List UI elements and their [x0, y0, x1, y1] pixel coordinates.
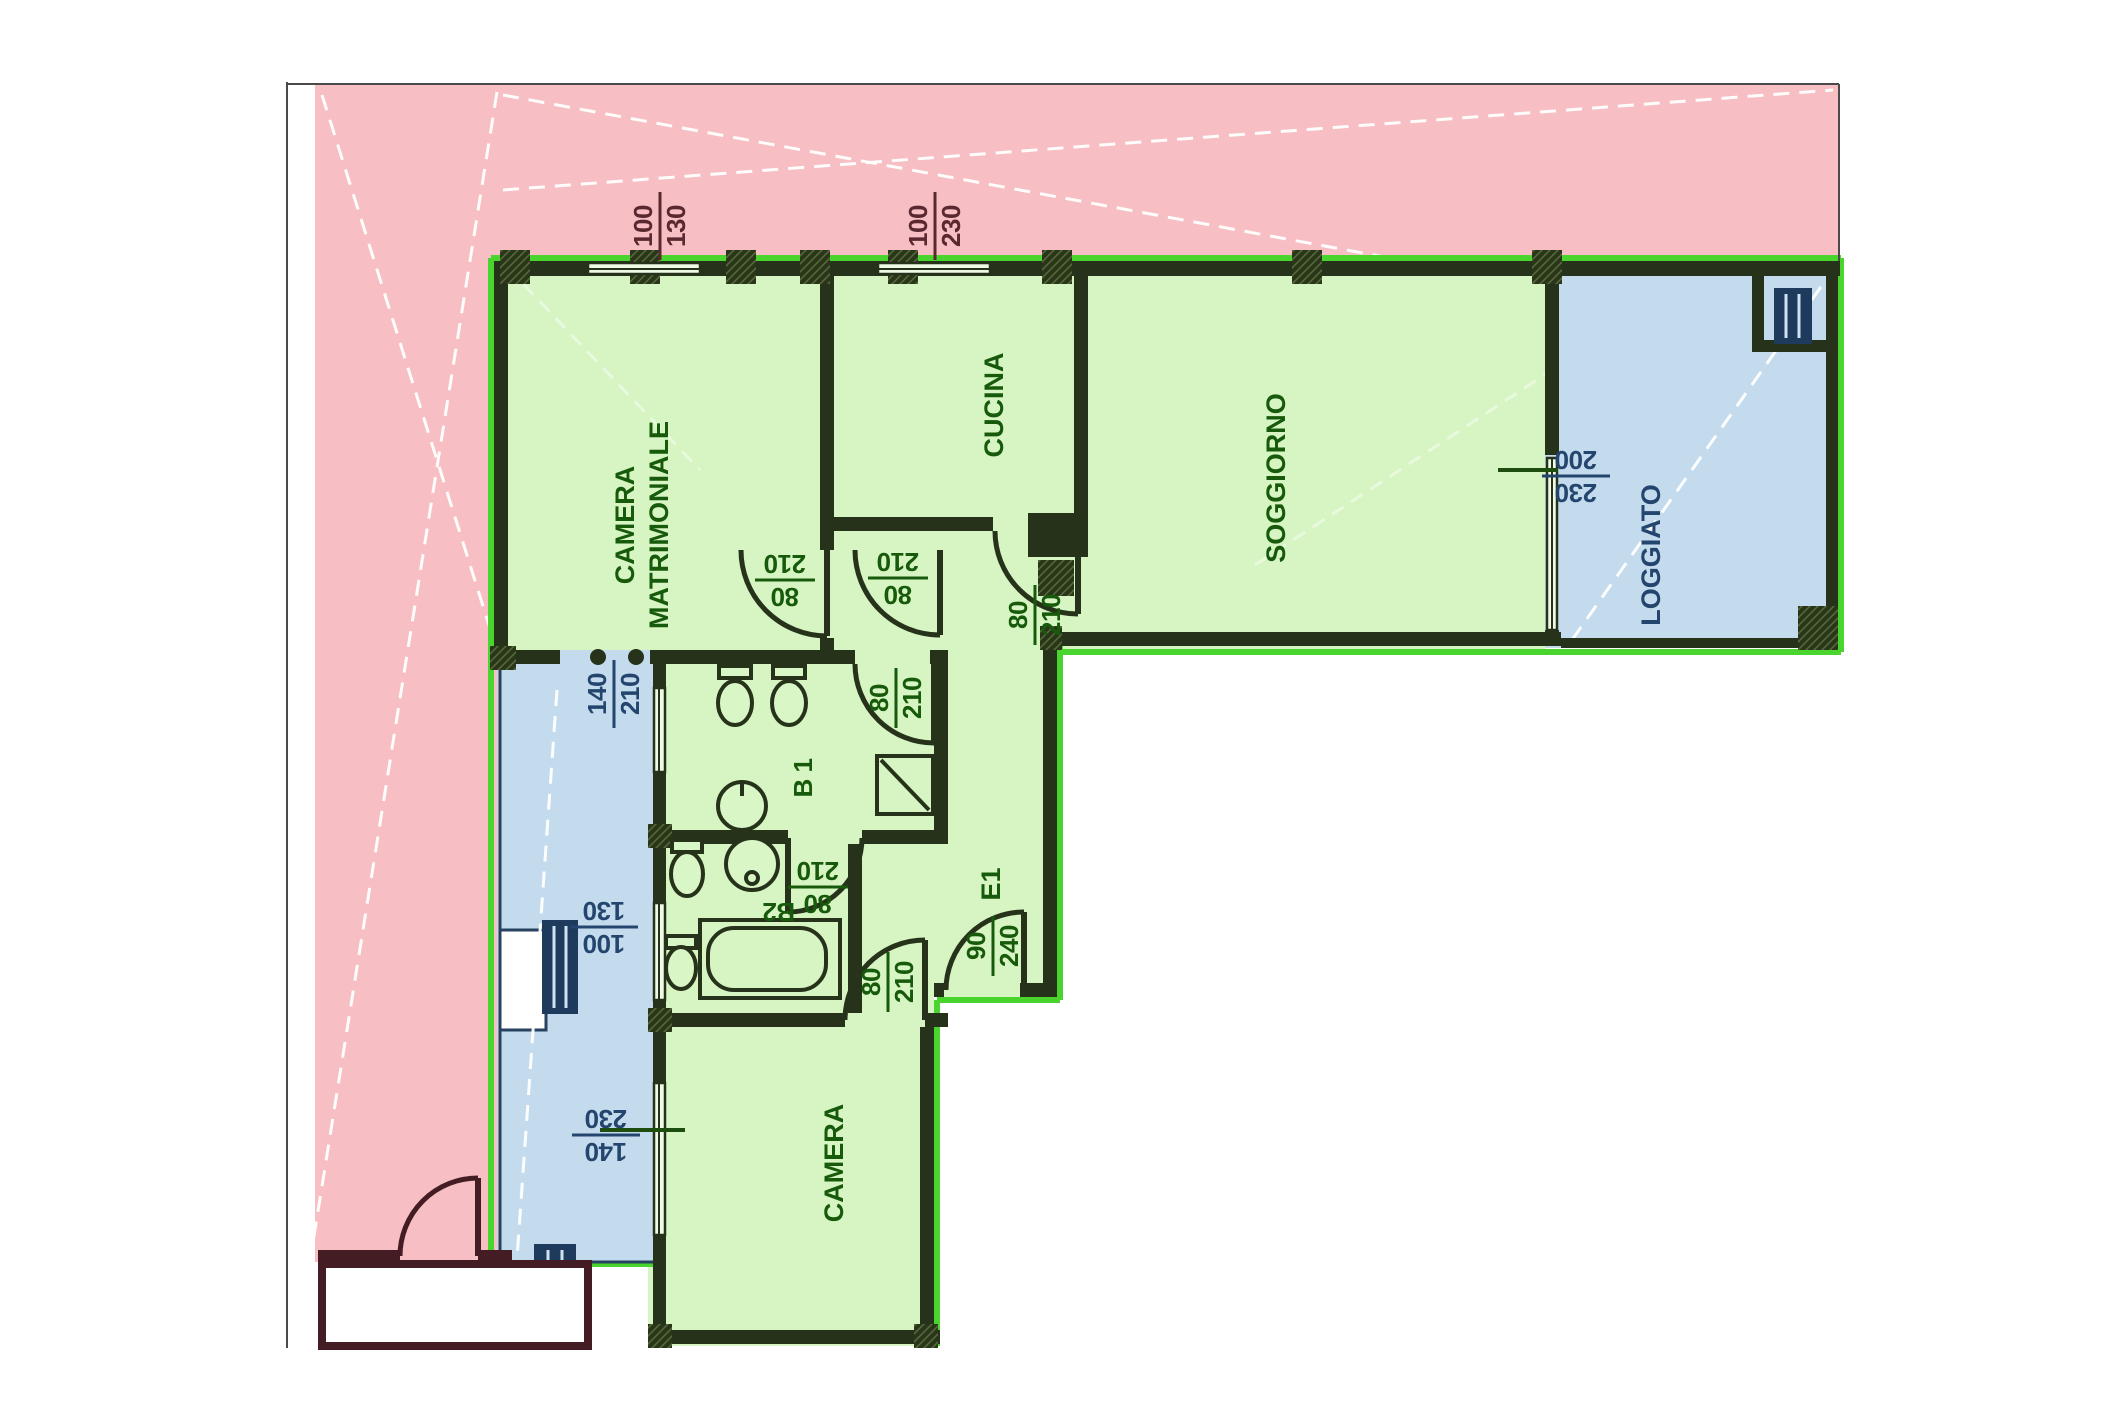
svg-text:130: 130	[583, 896, 625, 926]
svg-text:B 1: B 1	[788, 758, 818, 797]
svg-text:210: 210	[797, 856, 839, 886]
svg-text:E1: E1	[976, 867, 1006, 900]
svg-text:140: 140	[582, 673, 612, 715]
room-label-camera: CAMERA	[819, 1104, 849, 1223]
toilet-icon	[666, 936, 696, 989]
room-label-bagno2: B2	[763, 897, 795, 927]
svg-text:140: 140	[585, 1137, 627, 1167]
svg-text:200: 200	[1555, 445, 1597, 475]
radiator-icon	[1774, 288, 1812, 344]
svg-text:CAMERA: CAMERA	[610, 466, 640, 585]
svg-text:CUCINA: CUCINA	[979, 353, 1009, 458]
window-camera-matrimoniale-icon	[654, 688, 665, 772]
svg-text:100: 100	[903, 205, 933, 247]
svg-text:LOGGIATO: LOGGIATO	[1636, 484, 1666, 626]
wall-vent-icon	[590, 649, 606, 665]
window-top-left-icon	[588, 263, 700, 274]
sink-icon	[726, 838, 778, 890]
svg-text:100: 100	[583, 929, 625, 959]
svg-text:SOGGIORNO: SOGGIORNO	[1261, 393, 1291, 563]
floor-plan-drawing: CAMERA MATRIMONIALE CUCINA SOGGIORNO LOG…	[0, 0, 2102, 1402]
svg-text:100: 100	[628, 205, 658, 247]
svg-text:80: 80	[1003, 601, 1033, 629]
bidet-icon	[671, 840, 703, 896]
svg-text:80: 80	[884, 580, 912, 610]
svg-text:240: 240	[994, 925, 1024, 967]
svg-text:230: 230	[585, 1104, 627, 1134]
room-label-cucina: CUCINA	[979, 353, 1009, 458]
radiator-icon	[542, 920, 578, 1014]
svg-text:CAMERA: CAMERA	[819, 1104, 849, 1223]
floor-plan-canvas: CAMERA MATRIMONIALE CUCINA SOGGIORNO LOG…	[0, 0, 2102, 1402]
svg-text:B2: B2	[763, 897, 795, 927]
sink-icon	[718, 782, 766, 830]
svg-text:90: 90	[961, 932, 991, 960]
room-label-entrance: E1	[976, 867, 1006, 900]
svg-text:210: 210	[615, 673, 645, 715]
room-label-soggiorno: SOGGIORNO	[1261, 393, 1291, 563]
svg-text:80: 80	[856, 968, 886, 996]
svg-text:80: 80	[771, 582, 799, 612]
window-camera-icon	[654, 1083, 665, 1235]
svg-text:210: 210	[1036, 594, 1066, 636]
window-top-center-icon	[878, 263, 990, 274]
bidet-icon	[772, 666, 806, 725]
toilet-icon	[718, 666, 752, 725]
room-label-bagno1: B 1	[788, 758, 818, 797]
room-label-loggiato: LOGGIATO	[1636, 484, 1666, 626]
svg-text:210: 210	[764, 549, 806, 579]
svg-text:210: 210	[889, 961, 919, 1003]
svg-text:80: 80	[804, 889, 832, 919]
svg-text:130: 130	[661, 205, 691, 247]
svg-text:230: 230	[936, 205, 966, 247]
svg-text:230: 230	[1555, 478, 1597, 508]
wall-vent-icon	[628, 649, 644, 665]
left-shaft-notch	[500, 930, 546, 1030]
svg-text:MATRIMONIALE: MATRIMONIALE	[644, 421, 674, 629]
lower-room-area	[322, 1264, 588, 1346]
svg-text:80: 80	[864, 684, 894, 712]
svg-text:210: 210	[897, 677, 927, 719]
window-bagno-icon	[654, 903, 665, 1000]
svg-text:210: 210	[877, 547, 919, 577]
